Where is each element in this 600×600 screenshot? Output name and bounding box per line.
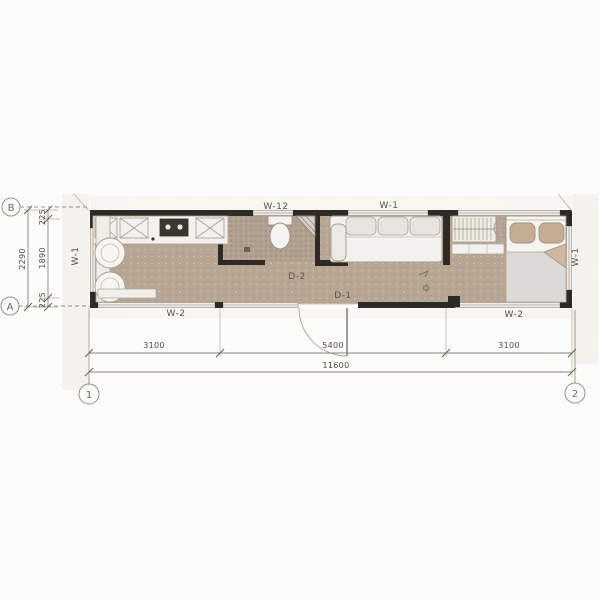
sofa-armrest xyxy=(331,224,346,261)
window-label-w1-left: W-1 xyxy=(71,246,81,265)
dim-3100-right: 3100 xyxy=(498,341,520,350)
bathroom-wall-right xyxy=(315,215,320,265)
bedroom-partition-bottom xyxy=(448,296,460,307)
floor-plan-canvas: B A 1 2 W-12 W-1 W-1 W-1 W-2 W-2 D-2 D-1… xyxy=(0,0,600,600)
window-label-w1-top: W-1 xyxy=(379,201,398,211)
wardrobe xyxy=(452,216,496,242)
window-w2-left xyxy=(98,303,215,308)
dim-2290: 2290 xyxy=(18,248,27,270)
floor-plan-drawing: B A 1 2 W-12 W-1 W-1 W-1 W-2 W-2 D-2 D-1… xyxy=(0,0,600,600)
window-label-w2-left: W-2 xyxy=(166,309,185,319)
window-bottom-middle xyxy=(223,303,298,308)
pillow xyxy=(539,223,564,243)
dim-1890: 1890 xyxy=(38,247,47,269)
sofa-cushion xyxy=(346,217,376,235)
bathroom-wall-bottom-left xyxy=(218,260,265,265)
door-label-d2: D-2 xyxy=(288,272,305,282)
sofa-cushion xyxy=(378,217,408,235)
sofa xyxy=(330,216,442,262)
floor-drain xyxy=(244,247,250,252)
dim-11600: 11600 xyxy=(323,361,350,370)
axis-label-b: B xyxy=(8,203,15,214)
sofa-cushion xyxy=(410,217,440,235)
window-label-w2-right: W-2 xyxy=(504,310,523,320)
knob xyxy=(151,237,154,240)
dim-225-bottom: 225 xyxy=(38,292,47,308)
door-label-d1: D-1 xyxy=(334,291,351,301)
window-w2-right xyxy=(455,303,560,308)
dim-3100-left: 3100 xyxy=(143,341,165,350)
dim-5400: 5400 xyxy=(322,341,344,350)
axis-label-a: A xyxy=(7,302,14,313)
washbasin xyxy=(95,238,125,268)
cooktop xyxy=(160,219,188,236)
window-w1-top xyxy=(348,211,428,216)
axis-label-2: 2 xyxy=(572,389,578,400)
bench xyxy=(98,289,156,298)
dim-225-top: 225 xyxy=(38,209,47,225)
bedroom-partition-top xyxy=(443,215,450,265)
window-label-w1-right: W-1 xyxy=(571,247,581,266)
pillow xyxy=(510,223,535,243)
axis-label-1: 1 xyxy=(86,390,92,401)
window-label-w12: W-12 xyxy=(263,202,288,212)
shelf xyxy=(452,244,504,254)
bed xyxy=(506,216,566,302)
window-bedroom-top xyxy=(458,211,560,216)
